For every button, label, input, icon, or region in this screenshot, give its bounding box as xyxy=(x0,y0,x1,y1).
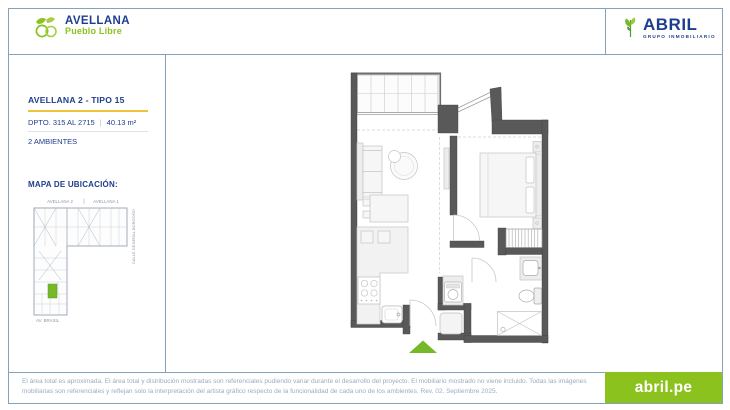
map-unit-highlight xyxy=(48,284,57,298)
bed xyxy=(480,153,542,217)
balcony-window-grid xyxy=(357,75,439,115)
closet-hatch xyxy=(506,229,542,248)
laundry-counter xyxy=(443,276,463,305)
dpto-separator: | xyxy=(100,118,102,127)
shower xyxy=(498,312,542,336)
header-logo-divider xyxy=(605,8,606,54)
map-label-avellana-1: AVELLANA 1 xyxy=(93,199,119,204)
tv-console xyxy=(444,148,449,189)
stove xyxy=(358,277,380,304)
website-button[interactable]: abril.pe xyxy=(605,372,722,403)
disclaimer-text: El área total es aproximada. El área tot… xyxy=(22,377,594,396)
company-logo: ABRIL GRUPO INMOBILIARIO xyxy=(622,16,716,40)
unit-area: 40.13 m² xyxy=(107,118,137,127)
floor-plan xyxy=(330,62,560,362)
project-district: Pueblo Libre xyxy=(65,27,130,36)
unit-dpto-row: DPTO. 315 AL 2715 | 40.13 m² xyxy=(28,118,136,127)
sofa xyxy=(357,143,382,200)
dining-table xyxy=(363,195,408,222)
abril-leaf-icon xyxy=(622,16,639,38)
bathroom-vanity xyxy=(520,257,542,280)
avellana-hazelnut-icon xyxy=(34,15,60,39)
appliance xyxy=(440,313,462,334)
entrance-marker-triangle xyxy=(409,341,437,354)
dpto-range: DPTO. 315 AL 2715 xyxy=(28,118,95,127)
location-map: AVELLANA 2 AVELLANA 1 CALLE GENERAL BORG… xyxy=(31,196,147,330)
title-underline xyxy=(28,110,148,112)
angled-window xyxy=(458,92,491,108)
website-label: abril.pe xyxy=(635,379,693,397)
coffee-table xyxy=(389,151,418,180)
company-name: ABRIL xyxy=(643,16,716,33)
unit-rooms: 2 AMBIENTES xyxy=(28,137,77,146)
project-logo: AVELLANA Pueblo Libre xyxy=(34,15,130,39)
row-divider xyxy=(28,131,148,132)
unit-title: AVELLANA 2 - TIPO 15 xyxy=(28,95,125,105)
kitchen-sink xyxy=(382,306,402,323)
map-label-street-bottom: AV. BRASIL xyxy=(36,318,60,323)
angled-window xyxy=(458,96,492,112)
company-tagline: GRUPO INMOBILIARIO xyxy=(643,35,716,40)
location-map-title: MAPA DE UBICACIÓN: xyxy=(28,180,118,189)
panel-divider xyxy=(165,54,166,372)
toilet xyxy=(519,288,542,304)
floorplan-datasheet-page: AVELLANA Pueblo Libre ABRIL GRUPO INMOBI… xyxy=(0,0,730,410)
header-divider xyxy=(8,54,722,55)
map-label-avellana-2: AVELLANA 2 xyxy=(47,199,73,204)
map-label-street-side: CALLE GENERAL BORGOÑO xyxy=(131,209,136,264)
